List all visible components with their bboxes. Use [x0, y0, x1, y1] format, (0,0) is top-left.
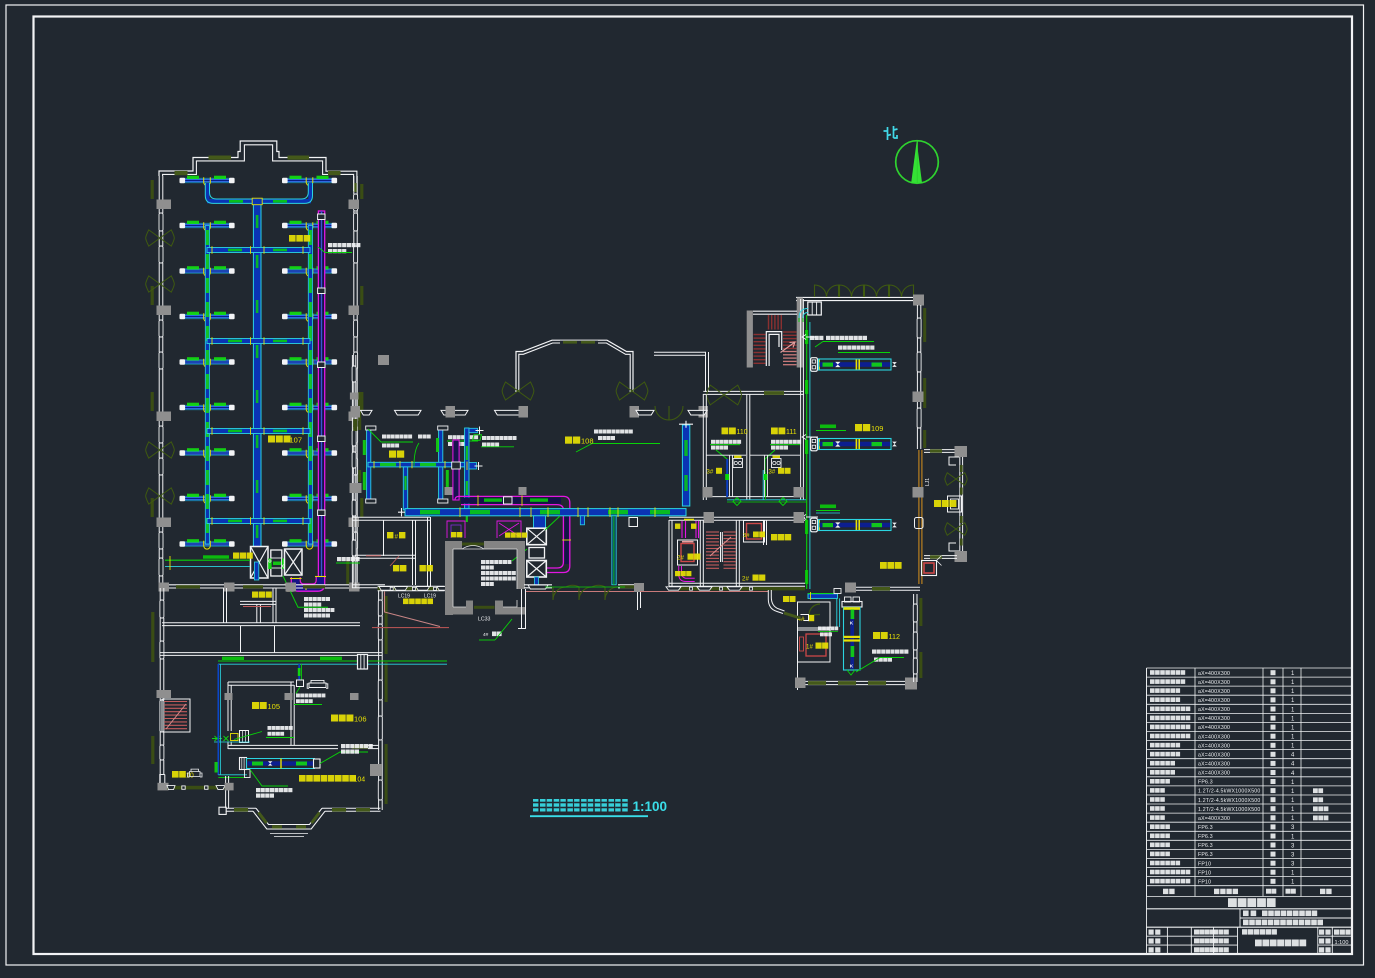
svg-text:105: 105	[268, 702, 281, 711]
svg-text:aX=400X300: aX=400X300	[1198, 762, 1230, 768]
svg-text:1#: 1#	[806, 644, 813, 651]
svg-text:FP10: FP10	[1198, 861, 1211, 867]
svg-text:aX=400X300: aX=400X300	[1198, 689, 1230, 695]
svg-text:106: 106	[354, 715, 367, 724]
svg-text:FP6.3: FP6.3	[1198, 834, 1213, 840]
svg-text:FP6.3: FP6.3	[1198, 825, 1213, 831]
svg-text:107: 107	[290, 436, 303, 445]
svg-text:104: 104	[354, 777, 366, 784]
svg-text:aX=400X300: aX=400X300	[1198, 725, 1230, 731]
svg-text:aX=400X300: aX=400X300	[1198, 716, 1230, 722]
svg-text:aX=400X300: aX=400X300	[1198, 743, 1230, 749]
svg-text:FP10: FP10	[1198, 870, 1211, 876]
svg-text:FP6.3: FP6.3	[1198, 852, 1213, 858]
svg-text:aX=400X300: aX=400X300	[1198, 680, 1230, 686]
svg-text:aX=400X300: aX=400X300	[1198, 698, 1230, 704]
svg-text:aX=400X300: aX=400X300	[1198, 816, 1230, 822]
svg-text:FP10: FP10	[1198, 879, 1211, 885]
svg-text:FP6.3: FP6.3	[1198, 780, 1213, 786]
svg-text:1.2T/2-4.5kWX1000X500: 1.2T/2-4.5kWX1000X500	[1198, 807, 1260, 813]
svg-text:109: 109	[871, 424, 883, 433]
svg-text:1.2T/2-4.5kWX1000X500: 1.2T/2-4.5kWX1000X500	[1198, 789, 1260, 795]
svg-text:aX=400X300: aX=400X300	[1198, 771, 1230, 777]
svg-text:1:100: 1:100	[633, 799, 668, 814]
svg-text:108: 108	[581, 437, 594, 446]
svg-text:111: 111	[786, 429, 797, 436]
svg-text:3#: 3#	[769, 470, 776, 476]
svg-text:3#: 3#	[743, 533, 750, 539]
svg-text:FP6.3: FP6.3	[1198, 843, 1213, 849]
svg-text:aX=400X300: aX=400X300	[1198, 671, 1230, 677]
svg-text:aX=400X300: aX=400X300	[1198, 707, 1230, 713]
svg-text:1.2T/2-4.5kWX1000X500: 1.2T/2-4.5kWX1000X500	[1198, 798, 1260, 804]
svg-text:K: K	[850, 621, 854, 627]
svg-text:aX=400X300: aX=400X300	[1198, 752, 1230, 758]
svg-text:LC33: LC33	[478, 617, 491, 623]
svg-text:110: 110	[737, 429, 748, 436]
svg-text:2#: 2#	[742, 576, 749, 583]
svg-text:aX=400X300: aX=400X300	[1198, 734, 1230, 740]
svg-text:112: 112	[889, 632, 900, 641]
svg-text:4#: 4#	[483, 632, 489, 638]
svg-text:3#: 3#	[707, 470, 714, 476]
svg-text:1:100: 1:100	[1335, 940, 1349, 946]
svg-text:LJ1: LJ1	[925, 478, 931, 486]
svg-text:2#: 2#	[677, 555, 684, 562]
svg-text:K: K	[850, 664, 854, 670]
svg-text:#: #	[395, 534, 399, 541]
